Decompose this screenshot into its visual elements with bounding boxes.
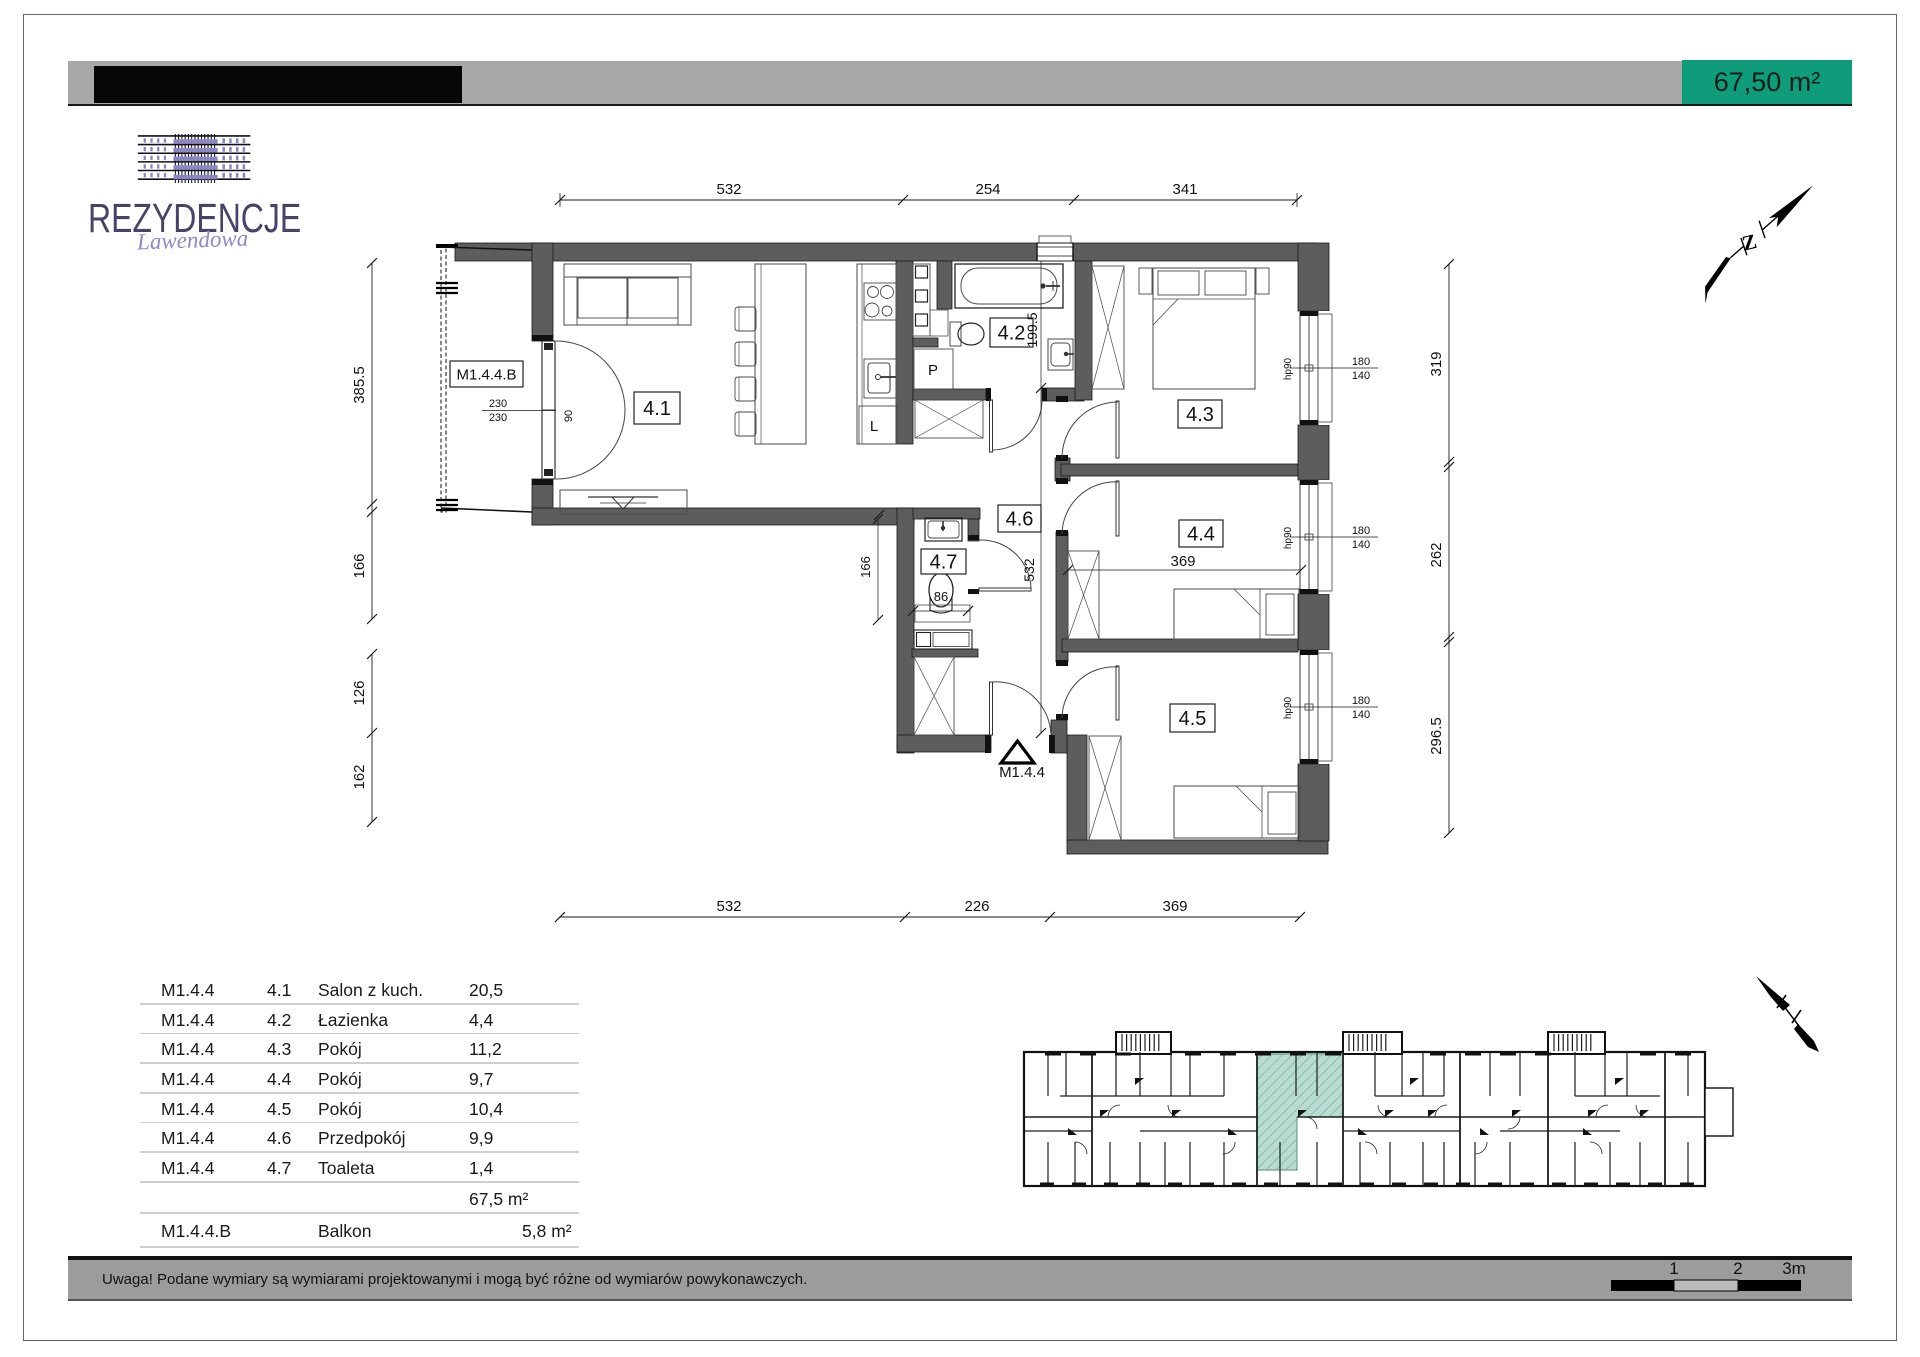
- svg-text:4.5: 4.5: [1179, 708, 1207, 730]
- svg-text:162: 162: [351, 764, 368, 789]
- svg-text:4.4: 4.4: [1187, 524, 1215, 546]
- svg-text:166: 166: [351, 553, 368, 578]
- svg-text:hp90: hp90: [1283, 526, 1294, 549]
- svg-text:180: 180: [1352, 695, 1370, 707]
- svg-text:3m: 3m: [1782, 1259, 1806, 1278]
- svg-text:180: 180: [1352, 525, 1370, 537]
- svg-text:296.5: 296.5: [1428, 717, 1445, 755]
- svg-text:126: 126: [351, 680, 368, 705]
- svg-text:Z: Z: [1740, 229, 1759, 256]
- svg-text:230: 230: [489, 398, 507, 410]
- svg-text:M1.4.4: M1.4.4: [999, 764, 1045, 781]
- svg-text:4.3: 4.3: [1186, 404, 1214, 426]
- svg-text:hp90: hp90: [1283, 696, 1294, 719]
- svg-text:90: 90: [563, 410, 575, 422]
- svg-text:P: P: [928, 362, 938, 379]
- svg-text:385.5: 385.5: [351, 366, 368, 404]
- svg-text:532: 532: [716, 181, 741, 198]
- svg-text:86: 86: [934, 589, 948, 604]
- svg-text:532: 532: [1021, 558, 1037, 582]
- svg-text:166: 166: [858, 556, 873, 578]
- svg-text:4.2: 4.2: [998, 323, 1026, 345]
- svg-text:4.1: 4.1: [643, 398, 671, 420]
- svg-text:369: 369: [1170, 553, 1195, 570]
- svg-text:230: 230: [489, 412, 507, 424]
- svg-text:4.7: 4.7: [930, 552, 958, 574]
- svg-text:369: 369: [1162, 898, 1187, 915]
- svg-text:180: 180: [1352, 356, 1370, 368]
- svg-text:262: 262: [1428, 542, 1445, 567]
- svg-text:199.5: 199.5: [1024, 312, 1040, 347]
- svg-text:2: 2: [1733, 1259, 1742, 1278]
- svg-text:140: 140: [1352, 370, 1370, 382]
- svg-text:4.6: 4.6: [1006, 509, 1034, 531]
- svg-text:140: 140: [1352, 539, 1370, 551]
- svg-text:341: 341: [1172, 181, 1197, 198]
- svg-text:532: 532: [716, 898, 741, 915]
- svg-text:319: 319: [1428, 351, 1445, 376]
- svg-text:140: 140: [1352, 709, 1370, 721]
- svg-text:226: 226: [964, 898, 989, 915]
- svg-text:1: 1: [1669, 1259, 1678, 1278]
- svg-text:254: 254: [975, 181, 1000, 198]
- svg-text:M1.4.4.B: M1.4.4.B: [456, 366, 516, 383]
- svg-text:hp90: hp90: [1283, 357, 1294, 380]
- svg-text:L: L: [870, 418, 878, 435]
